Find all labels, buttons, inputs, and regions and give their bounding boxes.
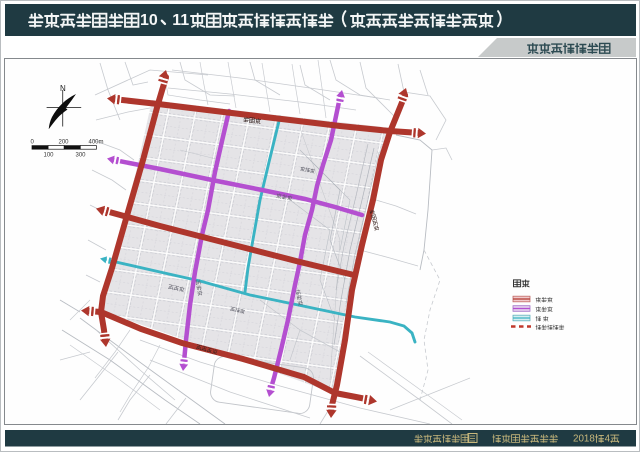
svg-text:10: 10: [140, 12, 158, 29]
svg-text:400m: 400m: [89, 140, 104, 146]
svg-text:11: 11: [172, 12, 189, 29]
svg-text:100: 100: [44, 153, 55, 159]
svg-text:300: 300: [76, 153, 87, 159]
svg-text:200: 200: [59, 140, 70, 146]
svg-text:4: 4: [605, 434, 611, 445]
svg-text:2018: 2018: [573, 434, 595, 445]
